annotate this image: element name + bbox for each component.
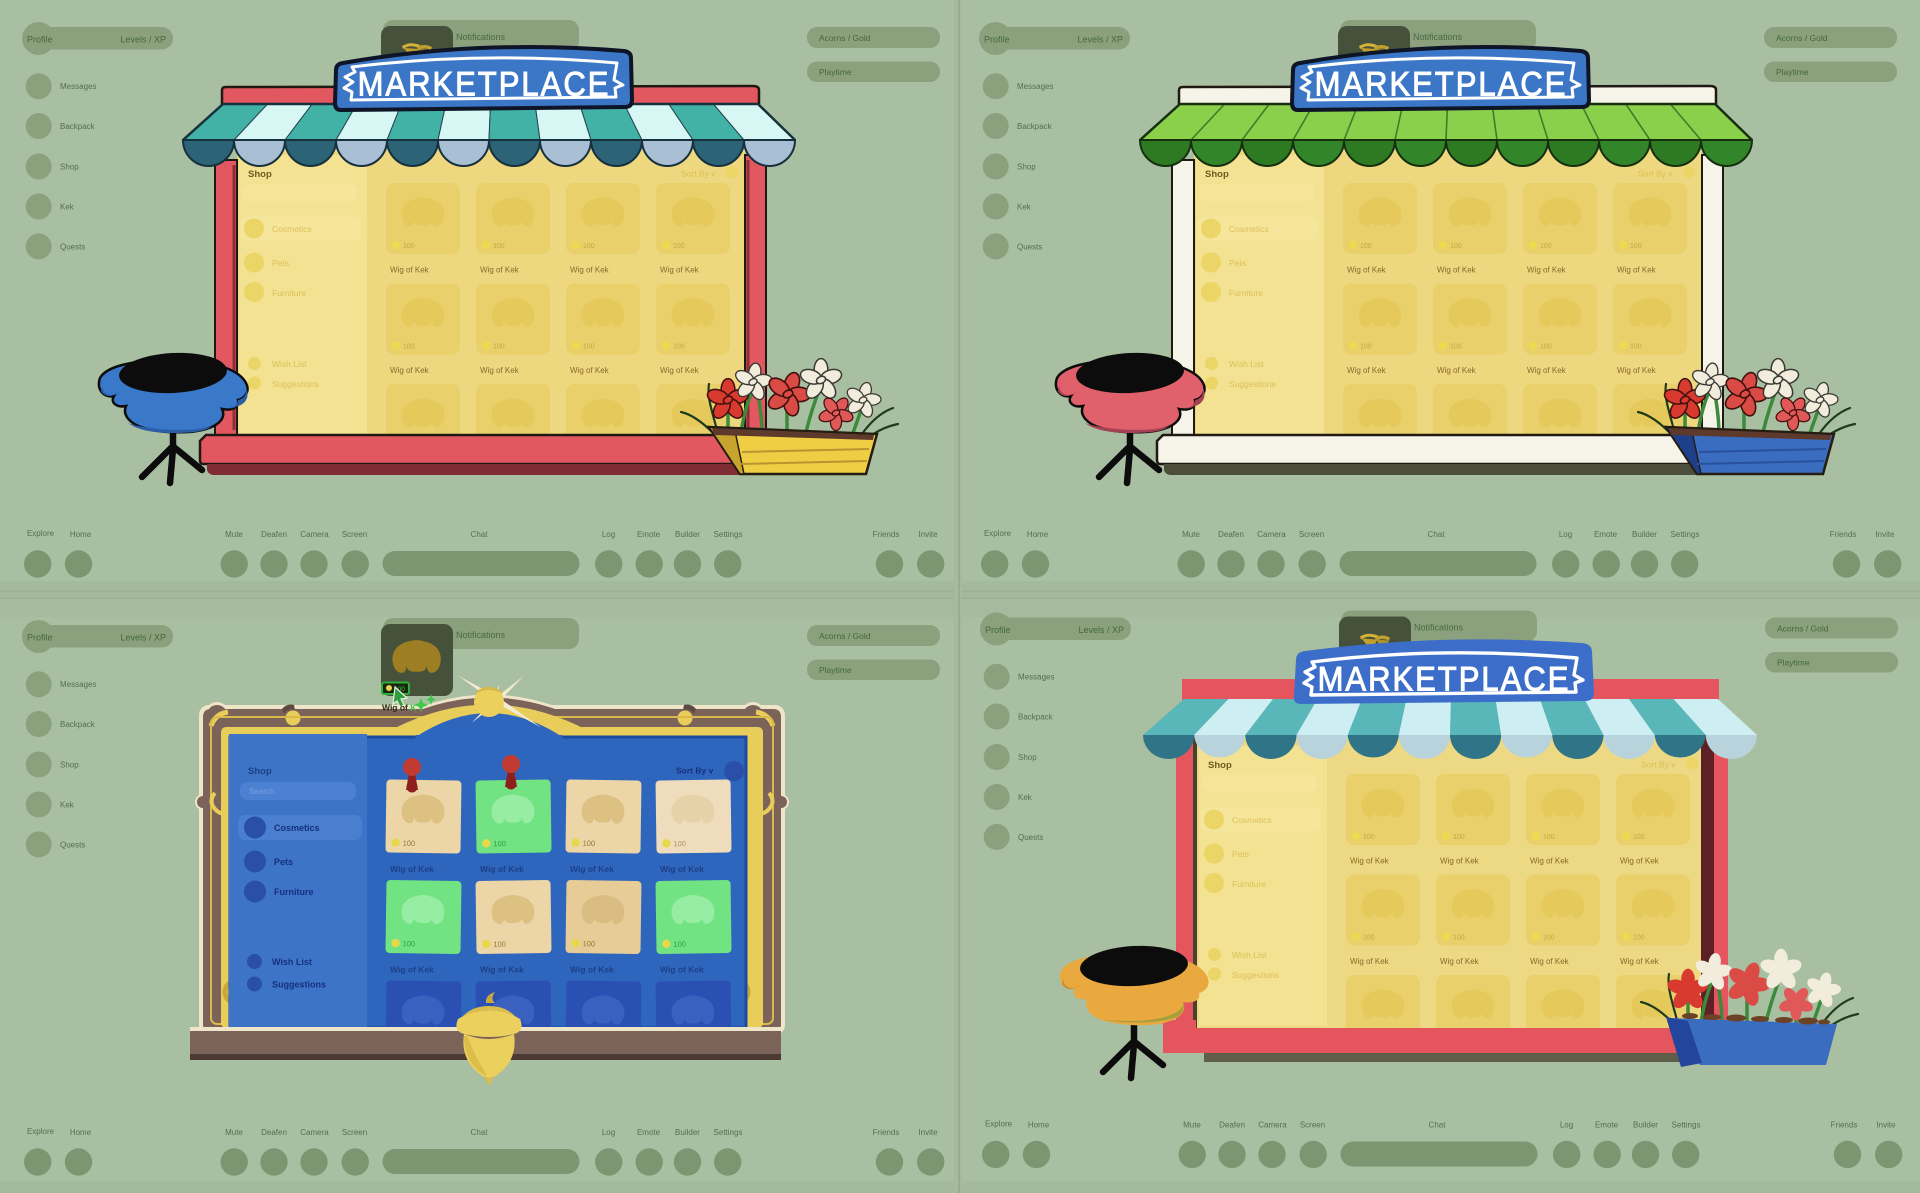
svg-text:Wish List: Wish List [272, 957, 312, 967]
svg-text:100: 100 [583, 939, 596, 948]
svg-text:MARKETPLACE: MARKETPLACE [1318, 660, 1571, 698]
svg-text:100: 100 [583, 839, 596, 848]
svg-text:Wig of K: Wig of K [382, 703, 417, 713]
svg-text:100: 100 [673, 839, 686, 848]
svg-text:Wig of Kek: Wig of Kek [660, 965, 704, 975]
svg-text:MARKETPLACE: MARKETPLACE [1315, 65, 1568, 103]
svg-text:Suggestions: Suggestions [272, 980, 326, 990]
svg-text:Pets: Pets [274, 857, 293, 867]
svg-text:Wig of Kek: Wig of Kek [480, 864, 524, 874]
svg-text:Wig of Kek: Wig of Kek [570, 965, 614, 975]
svg-text:100: 100 [493, 839, 506, 848]
svg-text:Shop: Shop [248, 766, 272, 777]
svg-text:Furniture: Furniture [274, 887, 314, 897]
svg-text:Cosmetics: Cosmetics [274, 823, 320, 833]
svg-text:Sort By v: Sort By v [676, 766, 714, 776]
svg-text:MARKETPLACE: MARKETPLACE [358, 65, 611, 103]
svg-text:Wig of Kek: Wig of Kek [480, 965, 524, 975]
svg-text:Wig of Kek: Wig of Kek [390, 965, 434, 975]
svg-text:Wig of Kek: Wig of Kek [660, 864, 704, 874]
svg-text:100: 100 [493, 940, 506, 949]
svg-text:100: 100 [403, 939, 416, 948]
svg-text:Search: Search [249, 787, 274, 796]
svg-text:Wig of Kek: Wig of Kek [390, 864, 434, 874]
svg-text:100: 100 [403, 839, 416, 848]
svg-text:100: 100 [673, 940, 686, 949]
svg-text:Wig of Kek: Wig of Kek [570, 864, 614, 874]
